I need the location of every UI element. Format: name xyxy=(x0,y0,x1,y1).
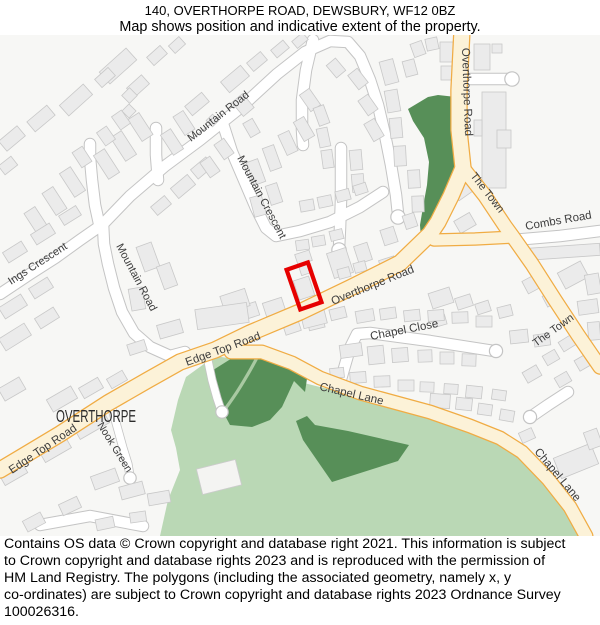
svg-text:OVERTHORPE: OVERTHORPE xyxy=(56,406,136,426)
